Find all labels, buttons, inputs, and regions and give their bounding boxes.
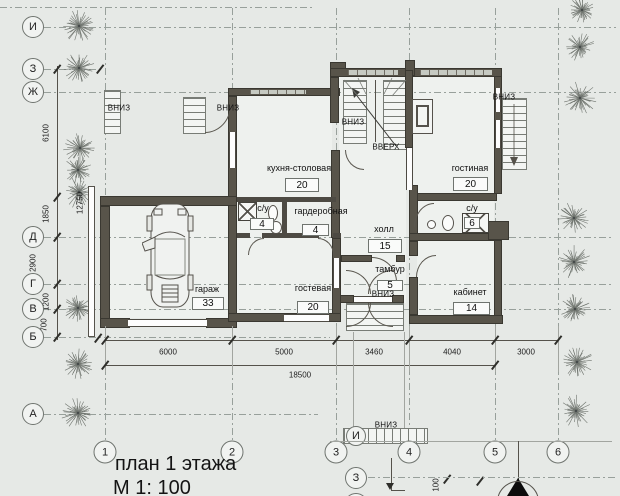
room-area-badge: 20 xyxy=(285,178,319,192)
room-label: кабинет xyxy=(453,287,486,297)
stair xyxy=(502,98,527,170)
room-area-badge: 14 xyxy=(453,302,490,315)
interior-wall xyxy=(282,199,287,234)
room-area-badge: 20 xyxy=(297,301,329,314)
tree-icon xyxy=(568,0,596,24)
stair-direction-label: ВНИЗ xyxy=(372,290,395,299)
dim-extension xyxy=(558,326,559,372)
dim-value: 1850 xyxy=(42,205,51,223)
stair-direction-label: ВНИЗ xyxy=(217,104,240,113)
dim-total-value: 18500 xyxy=(289,371,311,380)
wall xyxy=(341,255,372,262)
tree-icon xyxy=(63,155,93,185)
sheet-line xyxy=(330,441,612,442)
wall xyxy=(228,96,237,328)
stair-direction-label: ВНИЗ xyxy=(108,104,131,113)
stair-direction-label: ВНИЗ xyxy=(375,421,398,430)
stair-rail xyxy=(375,80,376,142)
wall xyxy=(494,240,502,324)
stair xyxy=(183,97,206,134)
grid-line-row-Б xyxy=(44,337,330,338)
tree-icon xyxy=(565,32,595,62)
window-band xyxy=(250,90,306,94)
dim-value: 3460 xyxy=(365,348,383,357)
wall xyxy=(409,315,503,324)
window xyxy=(495,120,501,148)
grid-line-row-Д xyxy=(44,237,614,238)
window xyxy=(229,132,236,168)
dim-offset-value: 12750 xyxy=(76,192,85,214)
window-band xyxy=(420,70,492,75)
grid-line-top xyxy=(0,7,315,8)
fireplace-inner xyxy=(416,105,429,127)
interior-wall xyxy=(237,233,250,238)
dim-extension xyxy=(409,326,410,372)
window xyxy=(284,314,329,322)
room-area-badge: 4 xyxy=(250,218,274,230)
wall xyxy=(409,233,498,241)
plan-drawing: 6000500034604040300018500610018502900120… xyxy=(0,0,620,496)
north-arrow-circle xyxy=(497,481,539,496)
dim-value: 4040 xyxy=(443,348,461,357)
grid-axis-row-Ж: Ж xyxy=(22,81,44,103)
tree-icon xyxy=(62,9,96,43)
room-label: холл xyxy=(374,224,394,234)
stair xyxy=(343,80,367,144)
dim-extension xyxy=(336,326,337,372)
dim-line-total xyxy=(105,365,495,366)
wall xyxy=(330,77,339,123)
dim-value: 6100 xyxy=(42,124,51,142)
wall xyxy=(100,196,237,206)
wall xyxy=(409,241,418,256)
window xyxy=(128,319,207,327)
stair-direction-label: ВНИЗ xyxy=(342,118,365,127)
dim-tick xyxy=(94,333,102,343)
dim-value: 6000 xyxy=(159,348,177,357)
grid-axis-extra: З xyxy=(345,467,367,489)
grid-axis-col-6: 6 xyxy=(547,441,570,464)
walkway-line xyxy=(353,332,354,428)
grid-line-row-З xyxy=(44,69,104,70)
room-area-badge: 15 xyxy=(368,239,402,253)
wall xyxy=(100,206,110,328)
tree-icon xyxy=(61,396,95,430)
offset-dimension-bar xyxy=(88,186,95,337)
grid-axis-row-А: А xyxy=(22,403,44,425)
sheet-dash-line xyxy=(368,477,618,478)
grid-axis-row-Г: Г xyxy=(22,273,44,295)
grid-axis-col-4: 4 xyxy=(398,441,421,464)
grid-line-row-А xyxy=(44,414,318,415)
grid-axis-row-З: З xyxy=(22,58,44,80)
grid-line-col-6 xyxy=(558,8,559,442)
plan-title: план 1 этажа xyxy=(115,453,236,476)
room-label: гараж xyxy=(195,284,219,294)
room-label: гардеробная xyxy=(294,206,347,216)
dim-extension xyxy=(232,326,233,372)
dim-small-value: 100 xyxy=(432,478,441,491)
dim-value: 5000 xyxy=(275,348,293,357)
tree-icon xyxy=(63,131,97,165)
stair-direction-label: ВВЕРХ xyxy=(372,143,399,152)
window xyxy=(406,148,413,190)
wall xyxy=(409,277,418,315)
grid-axis-row-Б: Б xyxy=(22,326,44,348)
plan-scale: М 1: 100 xyxy=(113,477,191,496)
grid-axis-col-1: 1 xyxy=(94,441,117,464)
dim-value: 3000 xyxy=(517,348,535,357)
walkway-line xyxy=(404,332,405,428)
room-area-badge: 20 xyxy=(453,177,488,191)
interior-wall xyxy=(333,233,341,238)
leader-line xyxy=(391,490,405,491)
window xyxy=(333,258,340,288)
tree-icon xyxy=(557,245,591,279)
wall xyxy=(331,150,340,238)
tree-icon xyxy=(559,394,593,428)
room-label: с/у xyxy=(257,203,269,213)
tree-icon xyxy=(63,52,95,84)
tree-icon xyxy=(560,345,594,379)
wall xyxy=(396,255,405,262)
stair-direction-label: ВНИЗ xyxy=(493,93,516,102)
dim-line-left xyxy=(57,66,58,340)
grid-axis-row-В: В xyxy=(22,298,44,320)
grid-line-row-И xyxy=(44,27,616,28)
room-label: тамбур xyxy=(375,264,404,274)
wall xyxy=(488,221,509,240)
grid-axis-row-Д: Д xyxy=(22,226,44,248)
window-band xyxy=(348,70,398,75)
wall xyxy=(415,193,497,201)
wall xyxy=(340,295,354,303)
floor-plan-canvas: 6000500034604040300018500610018502900120… xyxy=(0,0,620,496)
plumbing-fixture xyxy=(442,215,454,231)
dim-value: 2900 xyxy=(29,254,38,272)
room-label: гостиная xyxy=(452,163,489,173)
leader-arrowhead xyxy=(386,483,394,490)
grid-axis-col-5: 5 xyxy=(484,441,507,464)
room-area-badge: 33 xyxy=(192,297,224,310)
room-label: кухня-столовая xyxy=(267,163,331,173)
dim-tick xyxy=(443,474,451,484)
grid-axis-extra: И xyxy=(346,426,366,446)
dim-line-bottom xyxy=(105,340,558,341)
plumbing-fixture xyxy=(427,220,436,229)
tree-icon xyxy=(62,348,94,380)
room-label: с/у xyxy=(466,203,478,213)
stair xyxy=(383,80,407,150)
room-area-badge: 4 xyxy=(302,224,329,236)
tree-icon xyxy=(557,201,591,235)
grid-axis-row-И: И xyxy=(22,16,44,38)
grid-axis-col-3: 3 xyxy=(325,441,348,464)
tree-icon xyxy=(563,81,597,115)
room-label: гостевая xyxy=(295,283,331,293)
room-area-badge: 6 xyxy=(464,217,480,229)
